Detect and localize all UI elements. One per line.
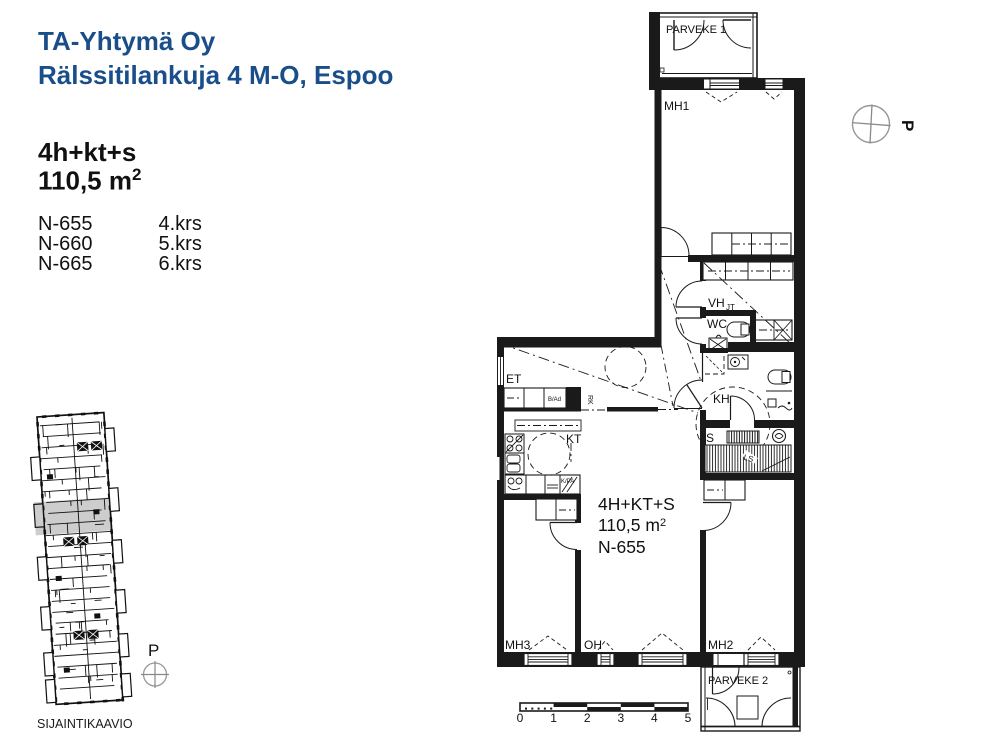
svg-text:P: P (898, 120, 917, 131)
svg-text:P: P (148, 641, 159, 660)
svg-text:4H+KT+S: 4H+KT+S (598, 494, 675, 514)
svg-text:KH: KH (713, 392, 730, 406)
svg-text:MH3: MH3 (505, 638, 531, 652)
svg-text:VH: VH (708, 296, 725, 310)
svg-text:0: 0 (517, 711, 524, 725)
svg-text:5: 5 (685, 711, 692, 725)
svg-text:K/PA: K/PA (561, 479, 574, 485)
svg-text:KT: KT (566, 432, 582, 446)
svg-text:PARVEKE 1: PARVEKE 1 (666, 24, 726, 36)
svg-text:WC: WC (707, 317, 727, 331)
svg-text:4: 4 (651, 711, 658, 725)
svg-text:110,5 m2: 110,5 m2 (598, 515, 666, 535)
svg-text:MH2: MH2 (708, 638, 734, 652)
svg-text:SIJAINTIKAAVIO: SIJAINTIKAAVIO (37, 717, 133, 731)
svg-text:2: 2 (584, 711, 591, 725)
svg-text:ET: ET (506, 372, 522, 386)
svg-text:1: 1 (550, 711, 557, 725)
svg-text:OH: OH (584, 638, 602, 652)
svg-text:MH1: MH1 (664, 99, 690, 113)
svg-text:S: S (706, 431, 714, 445)
svg-text:3: 3 (617, 711, 624, 725)
svg-text:B/Ad: B/Ad (548, 397, 561, 403)
svg-text:PARVEKE 2: PARVEKE 2 (708, 675, 768, 687)
svg-text:N-655: N-655 (598, 537, 646, 557)
svg-text:RK: RK (586, 395, 593, 405)
